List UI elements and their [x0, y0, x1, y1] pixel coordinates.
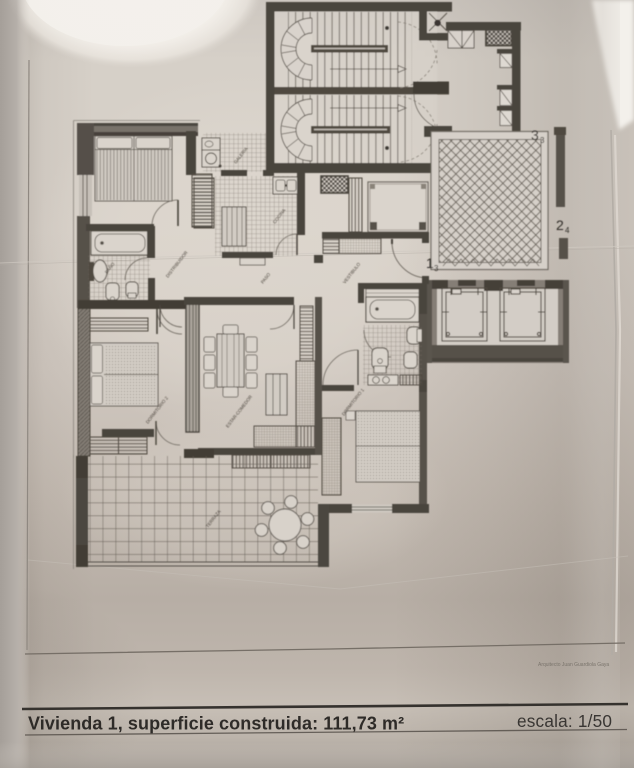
svg-text:Arquitecto Juan Guardiola Gaya: Arquitecto Juan Guardiola Gaya — [538, 662, 609, 668]
svg-text:Vivienda 1, superficie constru: Vivienda 1, superficie construida: 111,7… — [28, 714, 404, 734]
svg-text:3: 3 — [434, 264, 439, 273]
svg-text:2: 2 — [556, 217, 564, 233]
svg-text:1: 1 — [426, 255, 434, 271]
svg-text:3: 3 — [531, 127, 539, 143]
svg-text:4: 4 — [565, 226, 570, 235]
svg-text:escala: 1/50: escala: 1/50 — [517, 711, 612, 731]
svg-text:3: 3 — [540, 136, 545, 145]
